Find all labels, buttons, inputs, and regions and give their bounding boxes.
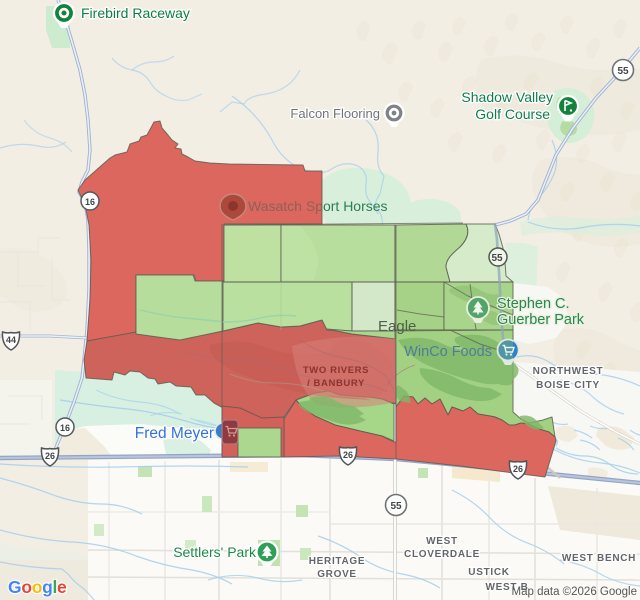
svg-text:Google: Google	[8, 577, 67, 597]
svg-text:/ BANBURY: / BANBURY	[307, 378, 365, 389]
svg-text:TWO RIVERS: TWO RIVERS	[303, 365, 369, 376]
svg-text:26: 26	[45, 451, 55, 461]
svg-text:Falcon Flooring: Falcon Flooring	[290, 106, 380, 121]
svg-text:HERITAGE: HERITAGE	[309, 556, 366, 567]
svg-text:Fred Meyer: Fred Meyer	[135, 425, 214, 442]
svg-text:16: 16	[60, 423, 70, 433]
svg-text:55: 55	[390, 501, 402, 512]
svg-text:Stephen C.: Stephen C.	[497, 296, 570, 312]
svg-text:WinCo Foods: WinCo Foods	[404, 344, 492, 360]
svg-text:55: 55	[491, 253, 503, 264]
svg-text:26: 26	[513, 464, 523, 474]
svg-text:WEST BENCH: WEST BENCH	[562, 553, 636, 564]
svg-text:Golf Course: Golf Course	[475, 106, 550, 122]
svg-text:GROVE: GROVE	[317, 569, 357, 580]
svg-text:16: 16	[85, 197, 95, 207]
svg-text:55: 55	[617, 66, 629, 77]
svg-text:26: 26	[343, 450, 353, 460]
svg-text:Firebird Raceway: Firebird Raceway	[81, 5, 190, 21]
svg-text:44: 44	[6, 335, 16, 345]
svg-text:NORTHWEST: NORTHWEST	[533, 366, 604, 377]
svg-text:Settlers' Park: Settlers' Park	[173, 544, 257, 560]
svg-text:WEST: WEST	[426, 536, 458, 547]
svg-text:Shadow Valley: Shadow Valley	[461, 89, 553, 105]
svg-text:CLOVERDALE: CLOVERDALE	[404, 549, 480, 560]
svg-text:Guerber Park: Guerber Park	[497, 312, 585, 328]
svg-text:BOISE CITY: BOISE CITY	[536, 380, 600, 391]
svg-text:Eagle: Eagle	[378, 318, 416, 335]
svg-text:Wasatch Sport Horses: Wasatch Sport Horses	[248, 198, 388, 214]
svg-text:Map data ©2026 Google: Map data ©2026 Google	[512, 586, 637, 598]
svg-text:USTICK: USTICK	[468, 567, 510, 578]
